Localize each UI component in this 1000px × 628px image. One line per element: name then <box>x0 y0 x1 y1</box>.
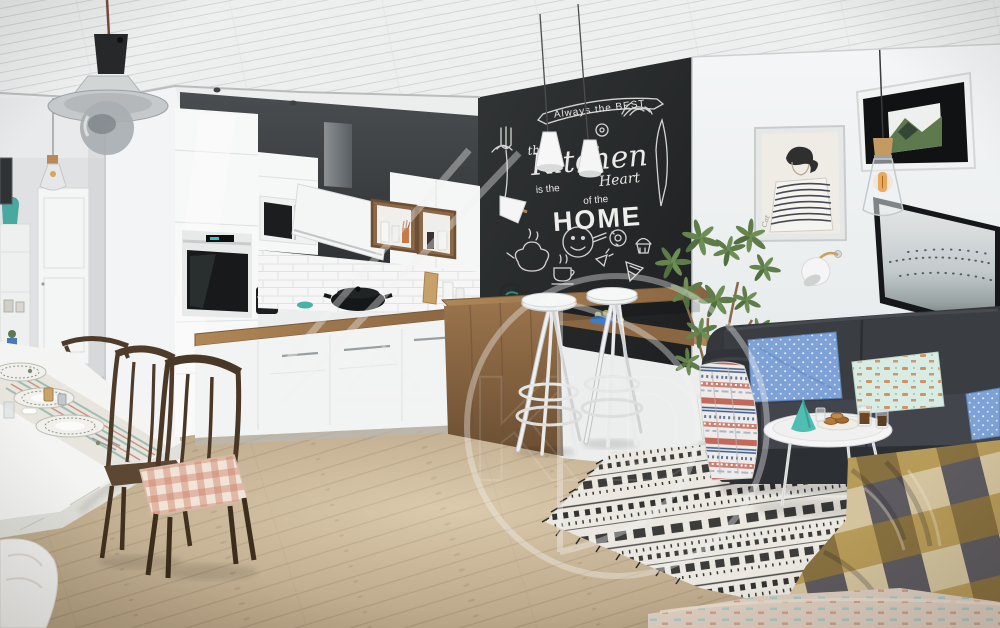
vignette <box>0 0 1000 628</box>
interior-photo: Always the BEST the Kitchen is the Heart… <box>0 0 1000 628</box>
